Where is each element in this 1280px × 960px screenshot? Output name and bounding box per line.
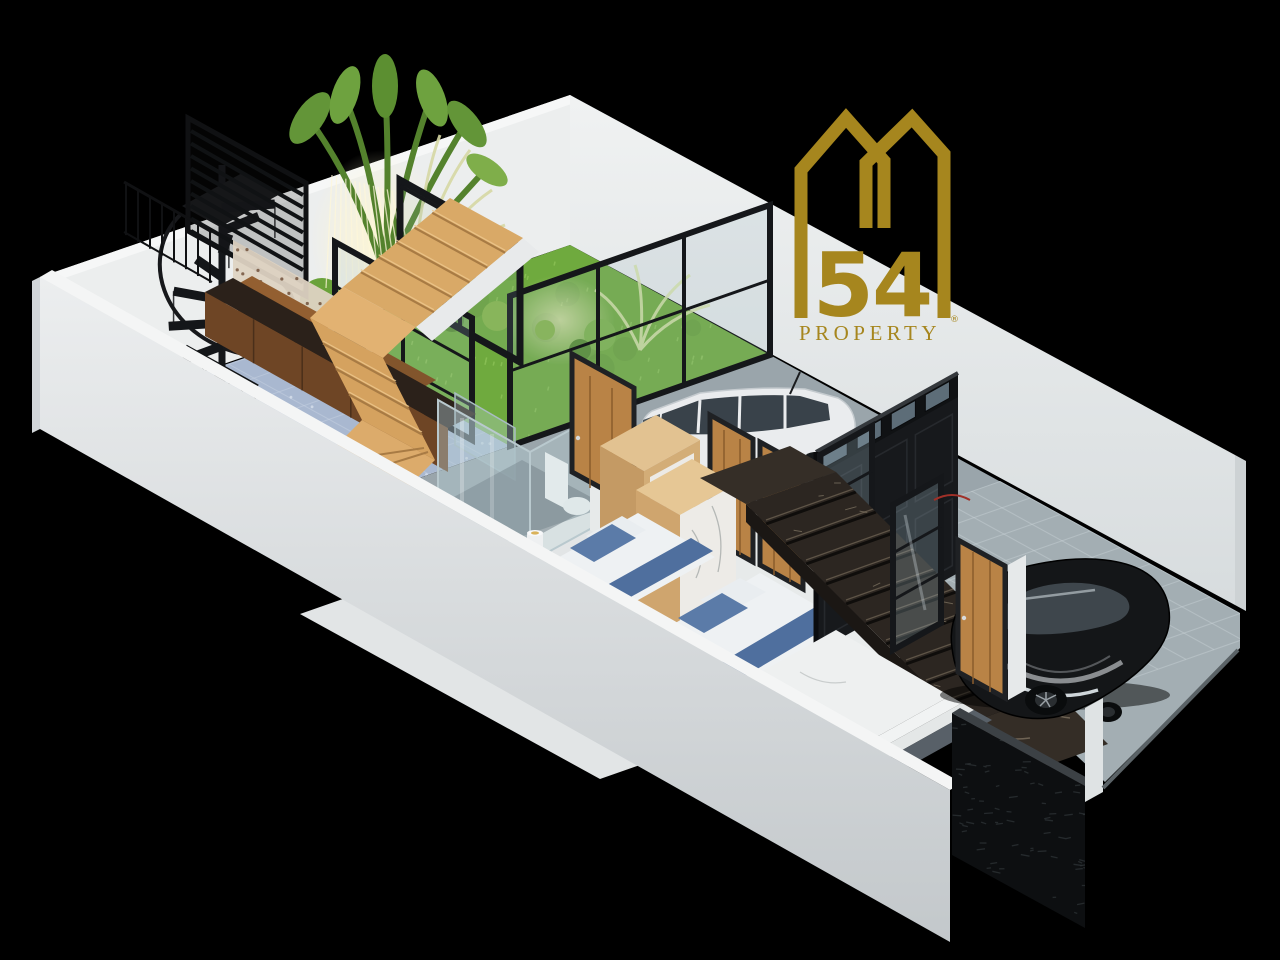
logo-wordmark: PROPERTY — [799, 321, 941, 345]
entry-post — [1008, 555, 1026, 700]
entry-door — [958, 540, 1026, 700]
floor-plan-screenshot: 54 PROPERTY ® — [0, 0, 1280, 960]
gate-pillar — [1085, 698, 1103, 802]
render-canvas: 54 PROPERTY ® — [0, 0, 1280, 960]
logo-registered-mark: ® — [950, 315, 959, 325]
